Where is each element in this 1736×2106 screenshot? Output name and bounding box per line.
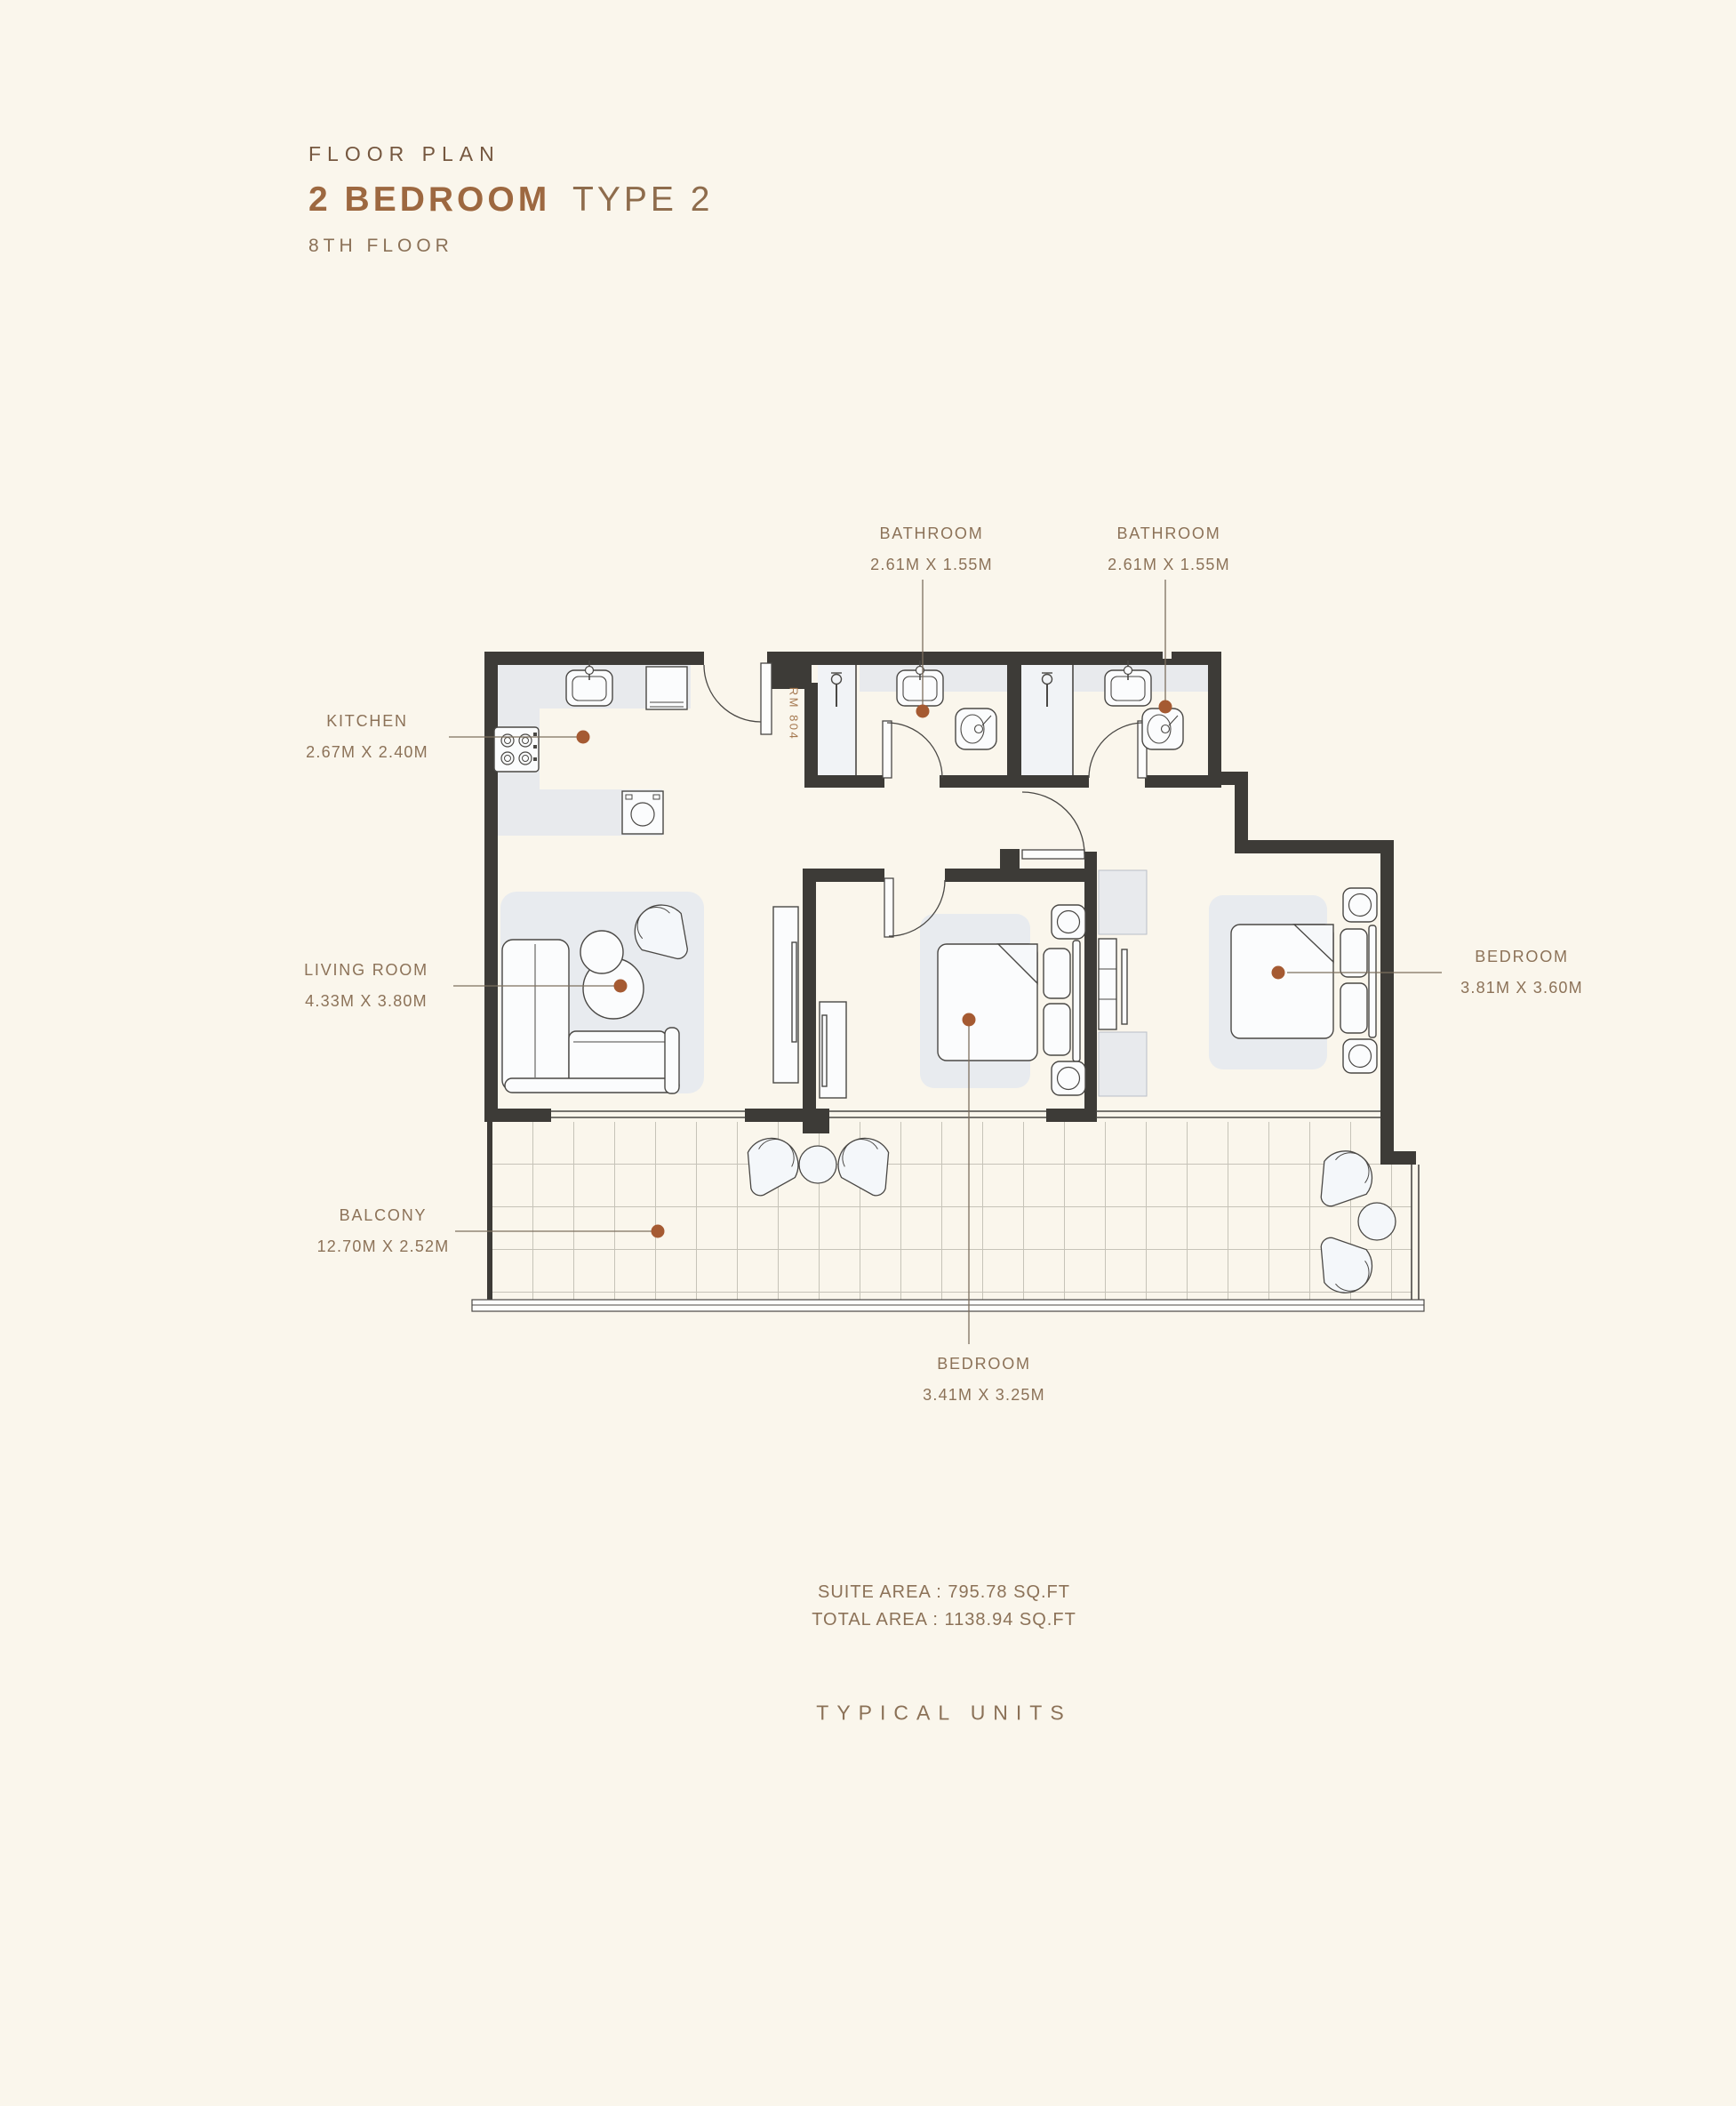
room-dims: 2.61M X 1.55M	[1108, 556, 1230, 574]
room-dims: 12.70M X 2.52M	[317, 1237, 450, 1256]
bed-right-headboard	[1369, 925, 1376, 1037]
floor-subtitle: 8TH FLOOR	[308, 236, 713, 257]
bathroom-1-toilet	[956, 709, 996, 749]
bed-mid-pillow	[1044, 1004, 1070, 1055]
entry-door	[704, 663, 772, 734]
room-dims: 4.33M X 3.80M	[304, 992, 428, 1011]
stove	[494, 727, 539, 772]
label-kitchen: KITCHEN 2.67M X 2.40M	[306, 712, 428, 762]
nightstand	[1052, 1061, 1085, 1095]
fridge	[646, 667, 687, 709]
bathroom-2-toilet	[1142, 709, 1183, 749]
bed-mid-pillow	[1044, 949, 1070, 998]
nightstand	[1343, 888, 1377, 922]
room-number: RM 804	[788, 687, 801, 741]
title-light: TYPE 2	[572, 180, 713, 219]
typical-units-tag: TYPICAL UNITS	[816, 1702, 1071, 1726]
header: FLOOR PLAN 2 BEDROOM TYPE 2 8TH FLOOR	[308, 142, 713, 257]
sofa-armrest	[665, 1028, 679, 1093]
room-dims: 2.61M X 1.55M	[870, 556, 993, 574]
dresser	[1099, 939, 1116, 1029]
floor-plan-eyebrow: FLOOR PLAN	[308, 142, 713, 166]
label-bedroom-bottom: BEDROOM 3.41M X 3.25M	[923, 1355, 1045, 1405]
room-dims: 3.81M X 3.60M	[1460, 979, 1583, 997]
label-bathroom-1: BATHROOM 2.61M X 1.55M	[870, 524, 993, 574]
label-living-room: LIVING ROOM 4.33M X 3.80M	[304, 961, 428, 1011]
bedroom-right-door	[1022, 792, 1084, 859]
room-name: BATHROOM	[1108, 524, 1230, 543]
bathroom-1-door	[883, 721, 942, 778]
balcony-table	[1358, 1203, 1396, 1240]
room-dims: 3.41M X 3.25M	[923, 1386, 1045, 1405]
floor-plan-drawing	[0, 0, 1736, 2106]
room-dims: 2.67M X 2.40M	[306, 743, 428, 762]
bathroom-2-door	[1089, 721, 1147, 778]
tv-living	[792, 942, 796, 1042]
room-name: BATHROOM	[870, 524, 993, 543]
balcony-area	[472, 1122, 1424, 1311]
bed-right-pillow	[1340, 983, 1367, 1033]
nightstand	[1052, 905, 1085, 939]
tv-right-bedroom	[1122, 949, 1127, 1024]
suite-area: SUITE AREA : 795.78 SQ.FT	[812, 1579, 1076, 1606]
balcony-table	[799, 1146, 836, 1183]
title-bold: 2 BEDROOM	[308, 180, 550, 219]
room-name: BALCONY	[317, 1206, 450, 1225]
total-area: TOTAL AREA : 1138.94 SQ.FT	[812, 1606, 1076, 1634]
room-name: KITCHEN	[306, 712, 428, 731]
room-name: LIVING ROOM	[304, 961, 428, 980]
bed-mid-headboard	[1073, 941, 1080, 1061]
label-balcony: BALCONY 12.70M X 2.52M	[317, 1206, 450, 1256]
sofa-front	[505, 1078, 679, 1093]
side-table	[580, 931, 623, 973]
page-title: 2 BEDROOM TYPE 2	[308, 180, 713, 220]
floor-plan-page: FLOOR PLAN 2 BEDROOM TYPE 2 8TH FLOOR BA…	[0, 0, 1736, 2106]
sliding-doors	[551, 1111, 1380, 1117]
area-summary: SUITE AREA : 795.78 SQ.FT TOTAL AREA : 1…	[812, 1579, 1076, 1634]
label-bedroom-right: BEDROOM 3.81M X 3.60M	[1460, 948, 1583, 997]
label-bathroom-2: BATHROOM 2.61M X 1.55M	[1108, 524, 1230, 574]
tv-mid	[822, 1015, 827, 1086]
nightstand	[1343, 1039, 1377, 1073]
room-name: BEDROOM	[923, 1355, 1045, 1373]
room-name: BEDROOM	[1460, 948, 1583, 966]
washer	[622, 791, 663, 834]
bed-right-pillow	[1340, 929, 1367, 977]
